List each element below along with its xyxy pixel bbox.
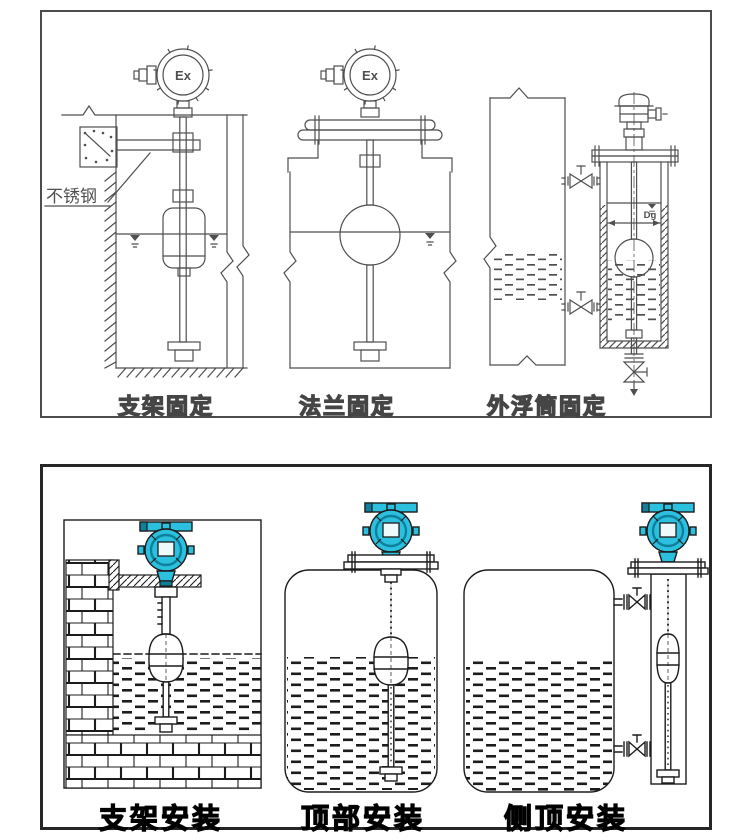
ex-head-icon xyxy=(134,46,212,117)
caption-side-top-install: 侧顶安装 xyxy=(456,797,676,837)
chamber-liquid xyxy=(608,260,660,322)
float xyxy=(149,634,183,682)
liquid xyxy=(287,657,435,790)
float xyxy=(374,637,408,685)
tank-wall-outer xyxy=(237,115,249,368)
ex-label: Ex xyxy=(175,68,192,83)
stem-weight xyxy=(155,717,177,724)
caption-flange-fixing: 法兰固定 xyxy=(237,389,457,421)
diagram-top-install xyxy=(285,503,438,792)
stem-lower xyxy=(163,682,169,717)
tank-wall-right xyxy=(444,172,456,368)
caption-top-install: 顶部安装 xyxy=(253,797,473,837)
bracket-plate xyxy=(80,127,117,167)
diagram-side-top-install xyxy=(464,503,708,792)
caption-bracket-install: 支架安装 xyxy=(51,797,271,837)
tank-liquid xyxy=(494,252,562,300)
tank-wall-inner xyxy=(221,115,233,368)
diagram-bracket-install xyxy=(64,520,261,788)
diagram-external-chamber-fixing: Dg xyxy=(484,88,678,396)
stem-clamp xyxy=(155,587,177,597)
level-marker xyxy=(425,233,435,245)
sensor-stem xyxy=(180,117,186,342)
ex-head-icon xyxy=(321,46,399,117)
float xyxy=(657,634,679,683)
level-marker xyxy=(209,235,219,247)
stem-weight xyxy=(354,342,386,350)
caption-external-chamber-fixing: 外浮筒固定 xyxy=(437,389,657,421)
stainless-steel-label: 不锈钢 xyxy=(46,187,97,206)
diagram-flange-fixing: Ex xyxy=(284,46,456,368)
bottom-diagrams-svg xyxy=(43,467,709,827)
stem-weight xyxy=(168,342,200,350)
sensor-stem xyxy=(162,597,170,634)
stem-weight-tip xyxy=(160,724,172,732)
tank-wall-left xyxy=(284,172,296,368)
brick-base xyxy=(66,735,261,788)
transmitter-head-icon xyxy=(640,503,696,567)
sensor-stem xyxy=(367,140,373,205)
bracket-plate xyxy=(109,560,119,590)
bottom-panel: 支架安装 顶部安装 侧顶安装 xyxy=(40,464,712,830)
isolation-valve-upper xyxy=(565,166,597,188)
float xyxy=(163,208,205,276)
dg-label: Dg xyxy=(644,210,657,221)
stem-weight xyxy=(380,767,402,774)
stem-weight-tip xyxy=(175,350,193,361)
sensor-stem-lower xyxy=(367,265,373,342)
stem-coupling xyxy=(381,569,401,575)
stem-lower xyxy=(665,683,671,770)
stem-weight xyxy=(657,770,679,777)
process-tank xyxy=(484,88,565,365)
float-ball xyxy=(340,205,400,265)
brick-wall xyxy=(66,560,113,735)
junction-head xyxy=(615,94,667,150)
level-marker xyxy=(130,235,140,247)
bracket-arm xyxy=(117,140,200,150)
stem-weight-tip xyxy=(385,774,397,781)
top-diagrams-svg: Ex 不锈钢 xyxy=(42,12,710,416)
chamber-flange xyxy=(592,146,678,166)
page: Ex 不锈钢 xyxy=(0,0,750,840)
stem-weight-tip xyxy=(361,350,379,361)
isolation-valve-lower xyxy=(565,292,597,314)
stem-coupling xyxy=(173,190,193,202)
ex-label: Ex xyxy=(362,68,379,83)
liquid xyxy=(113,658,261,733)
stem-clamp xyxy=(173,133,193,152)
liquid xyxy=(466,659,612,792)
stem-weight-tip xyxy=(662,777,674,783)
stem-coupling xyxy=(360,155,380,167)
flange xyxy=(628,559,708,577)
side-valve-lower xyxy=(614,735,650,756)
diagram-bracket-fixing: Ex 不锈钢 xyxy=(45,46,249,377)
side-valve-upper xyxy=(614,588,650,609)
top-panel: Ex 不锈钢 xyxy=(40,10,712,418)
